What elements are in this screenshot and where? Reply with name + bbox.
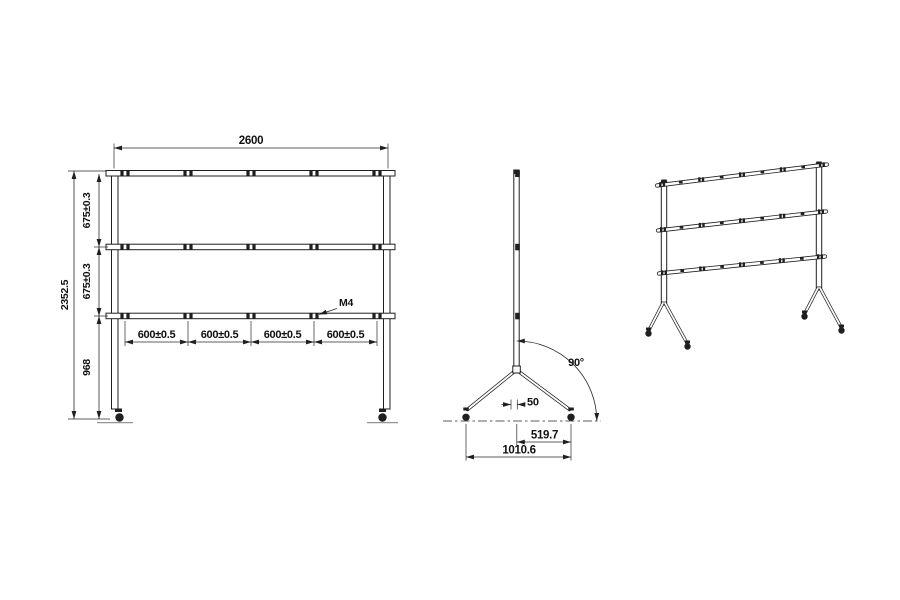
front-right-post: [384, 171, 391, 410]
callout-m4-label: M4: [339, 297, 353, 309]
dim-rail-spacing: 675±0.3 675±0.3 968: [81, 174, 108, 419]
dim-track-label: 1010.6: [502, 445, 535, 457]
dim-rail-gap-top-label: 675±0.3: [81, 192, 93, 228]
side-post: [514, 170, 519, 372]
dim-segment-3-label: 600±0.5: [264, 329, 302, 341]
iso-right-post: [816, 163, 821, 290]
front-left-post: [112, 171, 119, 410]
dim-half-track-label: 519.7: [531, 430, 558, 442]
dim-overall-width-label: 2600: [239, 135, 263, 147]
isometric-view: [645, 162, 844, 350]
dim-half-track: 519.7: [517, 424, 571, 446]
dim-segment-4-label: 600±0.5: [327, 329, 365, 341]
dim-segment-chain: 600±0.5 600±0.5 600±0.5 600±0.5: [125, 321, 377, 346]
dim-overall-width: 2600: [114, 135, 388, 169]
dim-leg-height-label: 968: [81, 359, 93, 376]
iso-left-post: [661, 181, 666, 305]
front-view: 2600 2352.5 675±0.3 675±0.3 968: [59, 135, 398, 423]
side-left-caster: [462, 408, 469, 421]
dim-caster-offset: 50: [502, 397, 539, 410]
dim-rail-gap-mid-label: 675±0.3: [81, 263, 93, 299]
front-left-caster: [97, 409, 133, 423]
front-right-caster: [367, 409, 398, 423]
side-legs: [468, 366, 570, 410]
iso-rail-clips: [659, 162, 825, 274]
dim-overall-height-label: 2352.5: [59, 279, 71, 310]
dim-segment-2-label: 600±0.5: [201, 329, 239, 341]
side-view: 90° 50 519.7 1010.6: [443, 170, 601, 461]
dim-swivel-angle-label: 90°: [568, 357, 584, 369]
technical-drawing-svg: 2600 2352.5 675±0.3 675±0.3 968: [0, 0, 900, 600]
side-right-caster: [567, 408, 574, 421]
iso-casters: [645, 311, 844, 350]
callout-m4: M4: [319, 297, 353, 315]
drawing-canvas: 2600 2352.5 675±0.3 675±0.3 968: [0, 0, 900, 600]
dim-segment-1-label: 600±0.5: [138, 329, 176, 341]
dim-caster-offset-label: 50: [527, 397, 539, 409]
iso-legs: [649, 288, 841, 343]
